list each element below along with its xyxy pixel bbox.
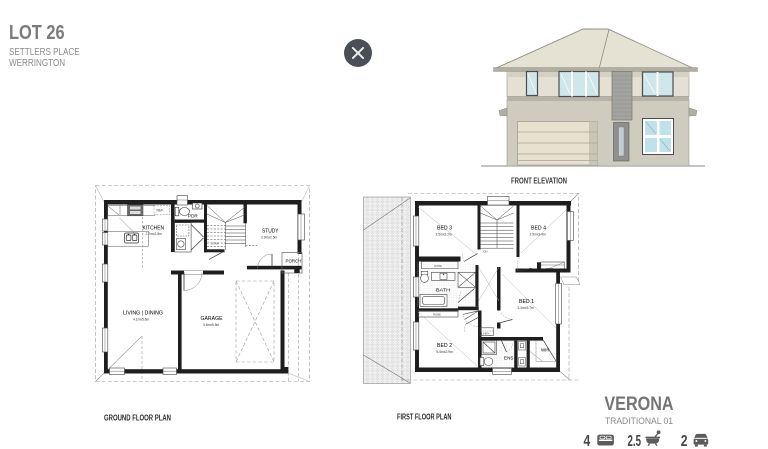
svg-text:2.5: 2.5 [628, 433, 642, 449]
svg-text:5.5mx2.9m: 5.5mx2.9m [437, 350, 454, 354]
svg-text:ENS: ENS [504, 356, 514, 361]
svg-text:LIVING | DINING: LIVING | DINING [123, 311, 163, 317]
svg-text:PDR: PDR [188, 214, 198, 219]
svg-text:3.6mx5.5m: 3.6mx5.5m [203, 323, 220, 327]
svg-text:BED 3: BED 3 [437, 226, 452, 232]
svg-text:STAIR: STAIR [211, 242, 219, 246]
svg-text:FIRST FLOOR PLAN: FIRST FLOOR PLAN [397, 413, 452, 422]
svg-text:2.9mx2.5m: 2.9mx2.5m [261, 236, 278, 240]
svg-text:LINEN: LINEN [482, 332, 490, 336]
svg-text:GROUND FLOOR PLAN: GROUND FLOOR PLAN [104, 414, 171, 423]
svg-text:PORCH: PORCH [286, 259, 302, 264]
svg-text:4: 4 [584, 433, 591, 449]
svg-text:ROBE: ROBE [433, 312, 441, 316]
svg-text:BED 1: BED 1 [519, 299, 534, 305]
svg-text:WIR: WIR [541, 348, 550, 353]
svg-text:3.5mx3.2m: 3.5mx3.2m [436, 233, 453, 237]
svg-text:BED 2: BED 2 [437, 343, 452, 349]
svg-text:2: 2 [681, 433, 688, 449]
svg-text:2.7mx2.8m: 2.7mx2.8m [146, 232, 163, 236]
svg-text:3.4mx3.7m: 3.4mx3.7m [518, 306, 535, 310]
svg-text:KITCHEN: KITCHEN [143, 226, 165, 232]
svg-text:GARAGE: GARAGE [201, 316, 223, 322]
svg-text:BED 4: BED 4 [531, 226, 546, 232]
svg-text:STUDY: STUDY [262, 229, 279, 235]
svg-text:DN: DN [484, 250, 488, 254]
svg-text:BATH: BATH [436, 288, 451, 294]
svg-text:REF.: REF. [157, 209, 164, 213]
svg-text:2.9mx3.4m: 2.9mx3.4m [530, 233, 547, 237]
svg-text:4.1mx5.6m: 4.1mx5.6m [133, 318, 150, 322]
